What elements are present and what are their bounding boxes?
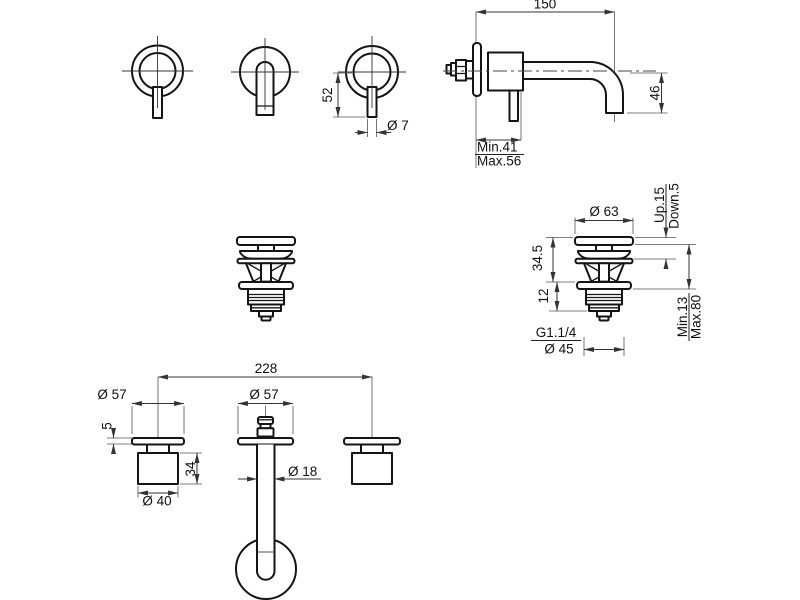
valve-stem	[147, 445, 169, 454]
dim-label-lever-length: 52	[320, 87, 335, 102]
dim-cap-travel: Up.15 Down.5	[634, 183, 682, 267]
dim-spout-tube-diameter: Ø 18	[238, 464, 321, 479]
dim-label-spout-reach: 150	[534, 0, 557, 12]
dim-label-flange-thickness: 5	[100, 422, 115, 430]
dim-valve-body-diameter: Ø 40	[138, 486, 178, 509]
dim-label-valve-flange-diameter: Ø 57	[97, 387, 126, 402]
dim-label-travel-up: Up.15	[652, 187, 667, 223]
view-mixer-side: 150 46 Min.41 Max.56	[443, 0, 668, 169]
dim-label-wall-depth-min: Min.41	[477, 140, 518, 155]
inlet-hex-nut	[456, 60, 466, 81]
crosshair-centerlines	[338, 36, 406, 108]
dim-label-cap-diameter: Ø 63	[589, 204, 618, 219]
dim-label-lever-diameter: Ø 7	[387, 118, 409, 133]
dim-label-outlet-height: 46	[648, 85, 663, 100]
mixer-body-drawing	[443, 43, 656, 121]
drawing-canvas: 52 Ø 7 150	[0, 0, 800, 600]
spout	[523, 62, 623, 113]
handle-front-dimensioned	[338, 36, 406, 117]
handle-stem	[510, 91, 519, 122]
technical-drawing-sheet: 52 Ø 7 150	[0, 0, 800, 600]
mixer-body	[488, 53, 523, 91]
spout-tube-drawing	[236, 417, 296, 599]
valve-stem	[361, 445, 383, 454]
popup-waste-right	[575, 237, 633, 321]
dim-label-flange-height: 12	[536, 288, 551, 303]
dim-cap-diameter: Ø 63	[575, 204, 633, 234]
dim-label-valve-body-diameter: Ø 40	[142, 494, 171, 509]
dim-label-spout-flange-diameter: Ø 57	[249, 387, 278, 402]
spout-aerator	[258, 417, 273, 424]
dim-label-spout-tube-diameter: Ø 18	[288, 464, 317, 479]
dim-flange-thickness: 5	[100, 422, 133, 454]
dim-label-valve-body-height: 34	[183, 461, 198, 477]
dim-label-thread: G1.1/4	[536, 325, 577, 340]
right-valve-drawing	[344, 438, 400, 484]
dim-label-upper-height: 34.5	[530, 245, 545, 271]
popup-waste-left	[237, 237, 295, 321]
handle-front-left	[122, 36, 193, 118]
dim-label-wall-depth-max: Max.56	[477, 154, 521, 169]
handle-side	[231, 38, 299, 115]
view-popup-waste: Ø 63 Up.15 Down.5 34.5 12 G1.1/4 Ø 45	[237, 183, 704, 356]
dim-outlet-height: 46	[627, 73, 668, 113]
view-installation: 228 Ø 57 5 34 Ø 40	[97, 361, 400, 599]
spout-tube	[257, 445, 275, 580]
dim-label-depth-max: Max.80	[689, 295, 704, 339]
dim-thread-and-body-diameter: G1.1/4 Ø 45	[531, 325, 624, 357]
dim-spout-reach: 150	[476, 0, 615, 12]
left-valve-drawing	[132, 438, 184, 484]
spout-flange	[238, 438, 293, 445]
valve-body	[352, 453, 392, 484]
wall-plate	[473, 43, 481, 96]
view-handles: 52 Ø 7	[122, 36, 409, 137]
dim-label-centers-distance: 228	[255, 361, 278, 376]
dim-centers-distance: 228	[158, 361, 372, 377]
dim-lever-diameter: Ø 7	[355, 118, 409, 137]
dim-label-travel-down: Down.5	[667, 183, 682, 229]
valve-body	[138, 453, 178, 484]
dim-upper-height: 34.5	[530, 238, 575, 283]
dim-label-body-diameter: Ø 45	[544, 342, 573, 357]
dim-valve-body-height: 34	[180, 453, 202, 484]
